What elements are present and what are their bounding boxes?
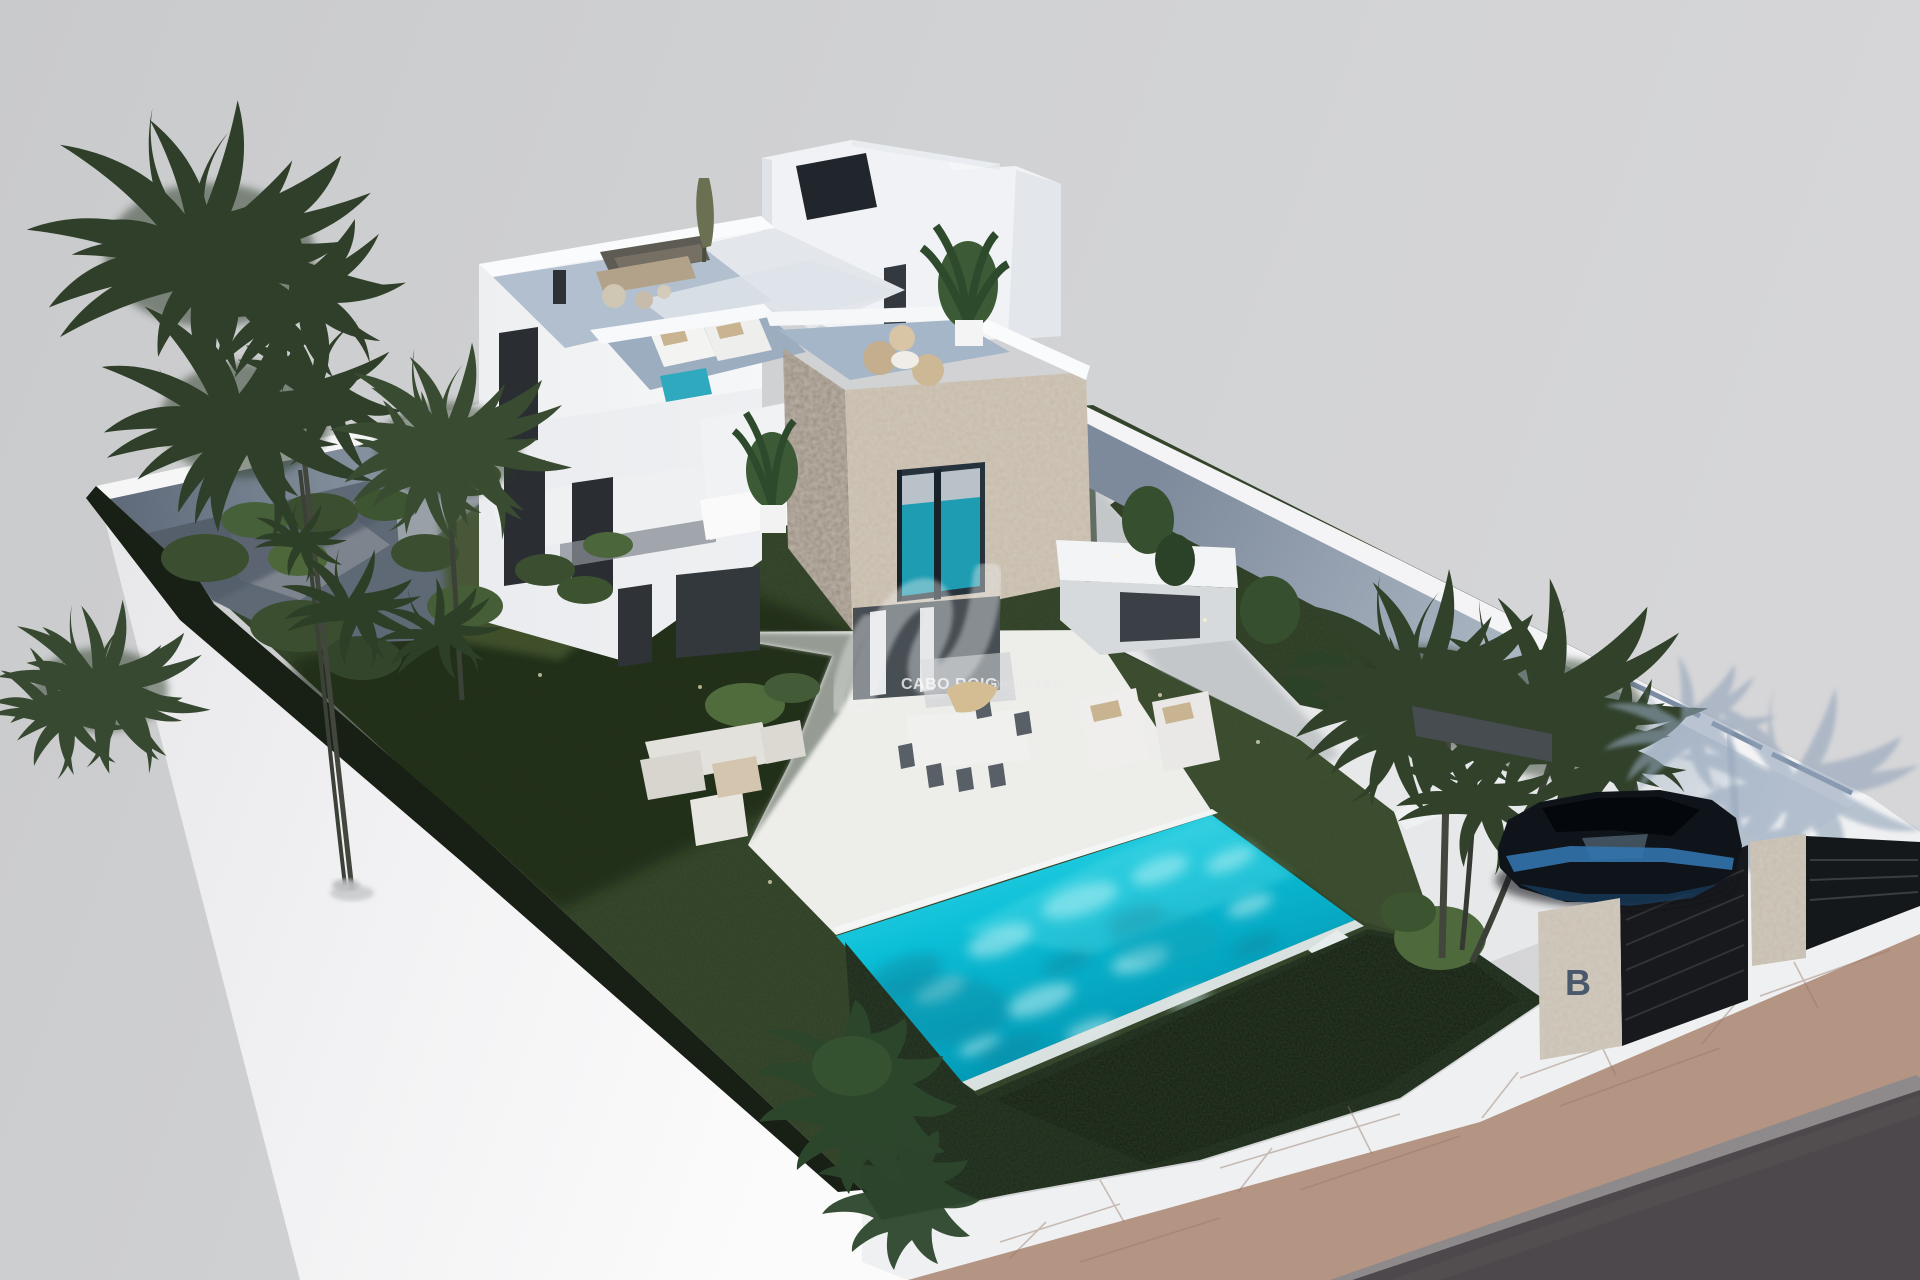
svg-text:B: B — [1565, 962, 1591, 1003]
svg-text:Desde 1970: Desde 1970 — [990, 676, 1066, 692]
